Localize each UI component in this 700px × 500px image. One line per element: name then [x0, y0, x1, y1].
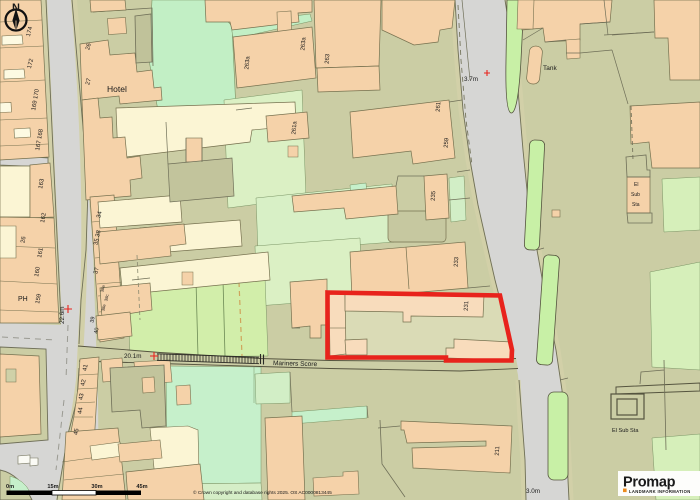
svg-text:Sub: Sub [631, 192, 640, 198]
svg-text:Tank: Tank [543, 65, 557, 72]
svg-text:15m: 15m [47, 484, 58, 490]
svg-text:Hotel: Hotel [107, 84, 127, 94]
svg-text:3.7m: 3.7m [464, 76, 478, 83]
svg-text:3.0m: 3.0m [526, 488, 540, 495]
svg-text:211: 211 [495, 445, 502, 456]
svg-text:45m: 45m [136, 484, 147, 490]
svg-text:PH: PH [18, 296, 28, 303]
svg-text:30m: 30m [91, 484, 102, 490]
svg-text:LANDMARK INFORMATION: LANDMARK INFORMATION [629, 489, 691, 494]
svg-text:231: 231 [464, 300, 471, 311]
svg-text:22.6m: 22.6m [59, 306, 66, 324]
svg-text:263a: 263a [244, 55, 251, 69]
svg-text:235: 235 [431, 190, 438, 201]
svg-text:© Crown copyright and database: © Crown copyright and database rights 20… [193, 489, 332, 496]
svg-text:261a: 261a [291, 120, 298, 134]
svg-text:263: 263 [325, 53, 332, 64]
svg-text:0m: 0m [6, 484, 14, 490]
svg-text:40: 40 [93, 327, 100, 334]
svg-text:Sta: Sta [632, 202, 640, 208]
svg-text:Mariners Score: Mariners Score [273, 360, 318, 368]
svg-text:261: 261 [436, 101, 443, 112]
svg-text:39: 39 [89, 316, 96, 323]
svg-text:El: El [634, 182, 638, 188]
svg-text:263a: 263a [300, 36, 307, 50]
svg-text:20.1m: 20.1m [124, 353, 142, 360]
svg-text:El Sub Sta: El Sub Sta [612, 428, 639, 434]
svg-text:259: 259 [444, 137, 451, 148]
svg-text:233: 233 [454, 256, 461, 267]
